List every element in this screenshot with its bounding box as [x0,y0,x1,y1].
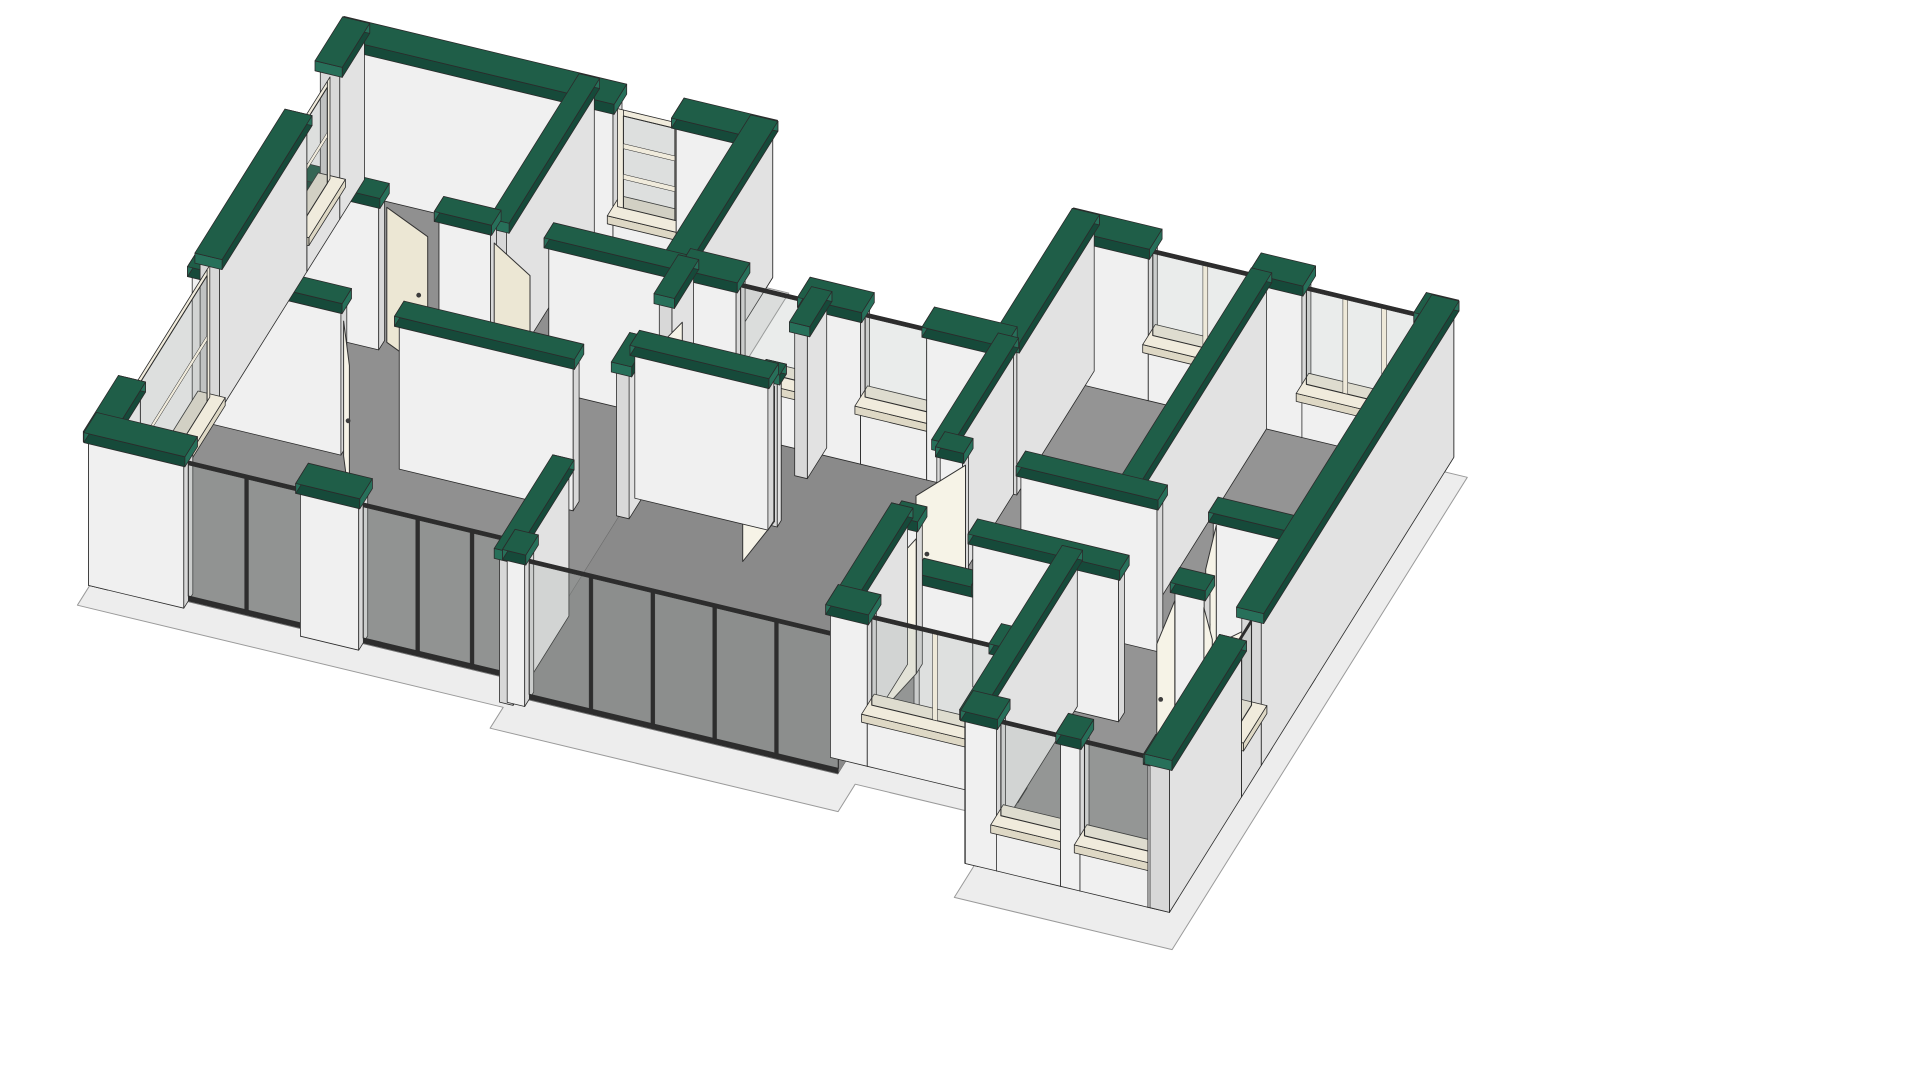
door-handle-icon [1158,697,1163,702]
building-axonometric-floor-plan [0,0,1920,1080]
viewport-3d [0,0,1920,1080]
door-handle-icon [416,293,421,298]
wall-c-room-s [630,330,779,530]
door-handle-icon [925,552,930,557]
door-handle-icon [346,418,351,423]
